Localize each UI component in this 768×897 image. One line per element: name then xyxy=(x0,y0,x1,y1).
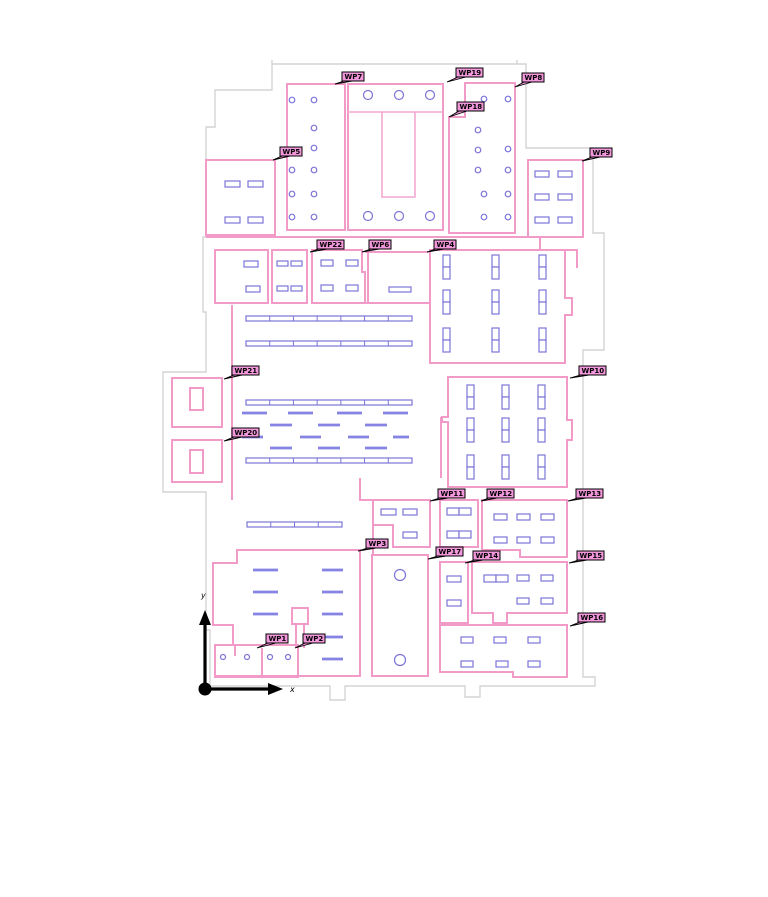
walls-layer xyxy=(172,83,583,677)
shelf xyxy=(246,400,412,405)
desk-vertical xyxy=(502,385,509,397)
circle-fixture xyxy=(475,127,481,133)
desk xyxy=(346,285,358,291)
desk-vertical xyxy=(443,290,450,302)
desk xyxy=(461,637,473,643)
desk xyxy=(496,661,508,667)
circle-fixture xyxy=(268,655,273,660)
desk-vertical xyxy=(502,467,509,479)
circle-fixture xyxy=(311,97,317,103)
desk-vertical xyxy=(443,302,450,314)
waypoint-label-WP13[interactable]: WP13 xyxy=(568,489,603,501)
waypoint-text: WP9 xyxy=(593,149,611,157)
wall xyxy=(190,450,203,473)
waypoint-leader xyxy=(570,622,588,626)
circle-fixture xyxy=(475,167,481,173)
circle-fixture xyxy=(286,655,291,660)
wall xyxy=(430,250,572,363)
waypoint-text: WP12 xyxy=(490,490,513,498)
desk-vertical xyxy=(443,328,450,340)
desk xyxy=(277,261,288,266)
desk xyxy=(403,509,417,515)
waypoint-text: WP19 xyxy=(459,69,482,77)
wall xyxy=(292,608,308,624)
wall xyxy=(472,562,567,623)
desk-vertical xyxy=(467,430,474,442)
desk-vertical xyxy=(538,385,545,397)
waypoint-text: WP16 xyxy=(581,614,604,622)
waypoint-label-WP8[interactable]: WP8 xyxy=(515,73,544,87)
desk xyxy=(494,537,507,543)
desk-vertical xyxy=(467,455,474,467)
waypoint-text: WP15 xyxy=(580,552,603,560)
desk-vertical xyxy=(538,397,545,409)
desk xyxy=(389,287,411,292)
circle-fixture xyxy=(245,655,250,660)
desk xyxy=(494,637,506,643)
wall xyxy=(440,625,567,677)
desk xyxy=(225,217,240,223)
waypoint-label-WP19[interactable]: WP19 xyxy=(447,68,483,82)
circle-fixture xyxy=(311,167,317,173)
desk-vertical xyxy=(539,328,546,340)
desk-vertical xyxy=(467,385,474,397)
wall xyxy=(172,378,222,427)
waypoint-label-WP9[interactable]: WP9 xyxy=(582,148,612,161)
desk-vertical xyxy=(502,430,509,442)
desk xyxy=(517,537,530,543)
waypoint-label-WP16[interactable]: WP16 xyxy=(570,613,605,626)
desk-vertical xyxy=(443,340,450,352)
desk xyxy=(535,194,549,200)
desk xyxy=(517,598,529,604)
circle-fixture xyxy=(364,91,373,100)
circle-fixture xyxy=(289,214,295,220)
desk xyxy=(494,514,507,520)
desk xyxy=(246,286,260,292)
circle-fixture xyxy=(505,214,511,220)
circle-fixture xyxy=(364,212,373,221)
desk xyxy=(535,217,549,223)
waypoint-leader xyxy=(447,77,466,82)
circle-fixture xyxy=(395,91,404,100)
circle-fixture xyxy=(311,214,317,220)
waypoint-text: WP6 xyxy=(372,241,390,249)
desk xyxy=(447,531,459,538)
desk-vertical xyxy=(502,455,509,467)
circle-fixture xyxy=(395,570,406,581)
desk-vertical xyxy=(538,418,545,430)
desk xyxy=(248,181,263,187)
wall xyxy=(190,388,203,410)
desk xyxy=(321,285,333,291)
circle-fixture xyxy=(311,125,317,131)
desk xyxy=(346,260,358,266)
desk-vertical xyxy=(492,290,499,302)
wall xyxy=(440,500,478,547)
desk-vertical xyxy=(443,255,450,267)
waypoint-label-WP15[interactable]: WP15 xyxy=(569,551,604,563)
desk xyxy=(381,509,396,515)
axis-x-label: x xyxy=(289,685,295,694)
desk xyxy=(528,661,540,667)
circle-fixture xyxy=(311,191,317,197)
desk xyxy=(291,261,302,266)
desk xyxy=(541,514,554,520)
desk xyxy=(248,217,263,223)
circle-fixture xyxy=(505,167,511,173)
wall xyxy=(215,250,268,303)
circle-fixture xyxy=(426,212,435,221)
wall xyxy=(372,555,428,676)
waypoint-text: WP14 xyxy=(476,552,499,560)
floorplan-drawing: x y WP1WP2WP3WP4WP5WP6WP7WP8WP9WP10WP11W… xyxy=(0,0,768,897)
desk xyxy=(244,261,258,267)
wall xyxy=(365,252,430,303)
wall xyxy=(287,84,345,230)
desk xyxy=(558,171,572,177)
waypoint-text: WP17 xyxy=(439,548,462,556)
axis-origin-dot xyxy=(199,683,212,696)
desk xyxy=(403,532,417,538)
desk xyxy=(496,575,508,582)
waypoint-text: WP4 xyxy=(437,241,455,249)
waypoint-leader xyxy=(582,157,600,161)
circle-fixture xyxy=(426,91,435,100)
axis-y-label: y xyxy=(200,591,206,600)
wall xyxy=(172,440,222,482)
waypoint-text: WP22 xyxy=(320,241,343,249)
waypoint-label-WP20[interactable]: WP20 xyxy=(224,428,259,441)
circle-fixture xyxy=(505,146,511,152)
axis-y-arrowhead xyxy=(199,610,211,625)
desk-vertical xyxy=(492,255,499,267)
desk xyxy=(541,537,554,543)
waypoint-text: WP7 xyxy=(345,73,363,81)
inner-wall xyxy=(382,112,415,197)
circle-fixture xyxy=(289,167,295,173)
desk xyxy=(277,286,288,291)
shelf xyxy=(246,458,412,463)
waypoint-leader xyxy=(515,82,532,87)
circle-fixture xyxy=(505,96,511,102)
floorplan-canvas: x y WP1WP2WP3WP4WP5WP6WP7WP8WP9WP10WP11W… xyxy=(0,0,768,897)
desk-vertical xyxy=(539,290,546,302)
waypoint-label-WP2[interactable]: WP2 xyxy=(295,634,325,648)
building-outline-layer xyxy=(163,60,604,700)
desk xyxy=(447,576,461,582)
desk xyxy=(558,194,572,200)
furniture-layer xyxy=(221,91,573,668)
wall xyxy=(348,84,443,230)
waypoint-label-WP18[interactable]: WP18 xyxy=(449,102,484,117)
waypoint-label-WP17[interactable]: WP17 xyxy=(428,547,463,559)
desk-vertical xyxy=(492,328,499,340)
circle-fixture xyxy=(505,191,511,197)
wall xyxy=(312,250,365,303)
building-outline xyxy=(163,60,604,700)
waypoint-text: WP10 xyxy=(582,367,605,375)
desk xyxy=(461,661,473,667)
desk xyxy=(517,514,530,520)
waypoint-label-WP21[interactable]: WP21 xyxy=(224,366,259,379)
desk-vertical xyxy=(538,467,545,479)
axis-x-arrowhead xyxy=(268,683,283,695)
desk-vertical xyxy=(539,267,546,279)
waypoint-text: WP2 xyxy=(306,635,324,643)
desk-vertical xyxy=(502,418,509,430)
desk-vertical xyxy=(443,267,450,279)
waypoint-text: WP8 xyxy=(525,74,543,82)
circle-fixture xyxy=(395,212,404,221)
circle-fixture xyxy=(475,147,481,153)
waypoint-text: WP5 xyxy=(283,148,301,156)
desk-vertical xyxy=(467,397,474,409)
desk xyxy=(225,181,240,187)
desk-vertical xyxy=(539,255,546,267)
waypoint-label-WP6[interactable]: WP6 xyxy=(362,240,391,252)
waypoint-text: WP20 xyxy=(235,429,258,437)
desk-vertical xyxy=(467,467,474,479)
circle-fixture xyxy=(395,655,406,666)
desk xyxy=(459,508,471,515)
desk-vertical xyxy=(492,267,499,279)
wall xyxy=(206,160,275,235)
wall xyxy=(482,500,567,557)
desk xyxy=(528,637,540,643)
desk-vertical xyxy=(492,302,499,314)
circle-fixture xyxy=(289,97,295,103)
circle-fixture xyxy=(289,191,295,197)
desk-vertical xyxy=(502,397,509,409)
waypoint-text: WP21 xyxy=(235,367,258,375)
waypoint-text: WP18 xyxy=(460,103,483,111)
wall xyxy=(440,562,468,623)
waypoint-label-WP7[interactable]: WP7 xyxy=(335,72,364,84)
shelf xyxy=(246,341,412,346)
desk xyxy=(321,260,333,266)
desk xyxy=(447,508,459,515)
desk-vertical xyxy=(539,302,546,314)
desk xyxy=(291,286,302,291)
circle-fixture xyxy=(481,96,487,102)
desk-vertical xyxy=(492,340,499,352)
desk xyxy=(541,598,553,604)
desk-vertical xyxy=(539,340,546,352)
desk-vertical xyxy=(538,455,545,467)
waypoint-text: WP1 xyxy=(269,635,287,643)
circle-fixture xyxy=(481,214,487,220)
wall xyxy=(215,645,298,677)
desk xyxy=(558,217,572,223)
shelf xyxy=(246,316,412,321)
desk xyxy=(541,575,553,581)
circle-fixture xyxy=(221,655,226,660)
waypoint-text: WP11 xyxy=(441,490,464,498)
desk xyxy=(484,575,496,582)
desk xyxy=(517,575,529,581)
desk-vertical xyxy=(467,418,474,430)
waypoint-text: WP3 xyxy=(369,540,387,548)
desk-vertical xyxy=(538,430,545,442)
wall xyxy=(272,250,307,303)
waypoint-label-WP10[interactable]: WP10 xyxy=(570,366,606,378)
waypoint-text: WP13 xyxy=(579,490,602,498)
circle-fixture xyxy=(311,145,317,151)
desk xyxy=(447,600,461,606)
desk xyxy=(535,171,549,177)
circle-fixture xyxy=(481,191,487,197)
desk xyxy=(459,531,471,538)
